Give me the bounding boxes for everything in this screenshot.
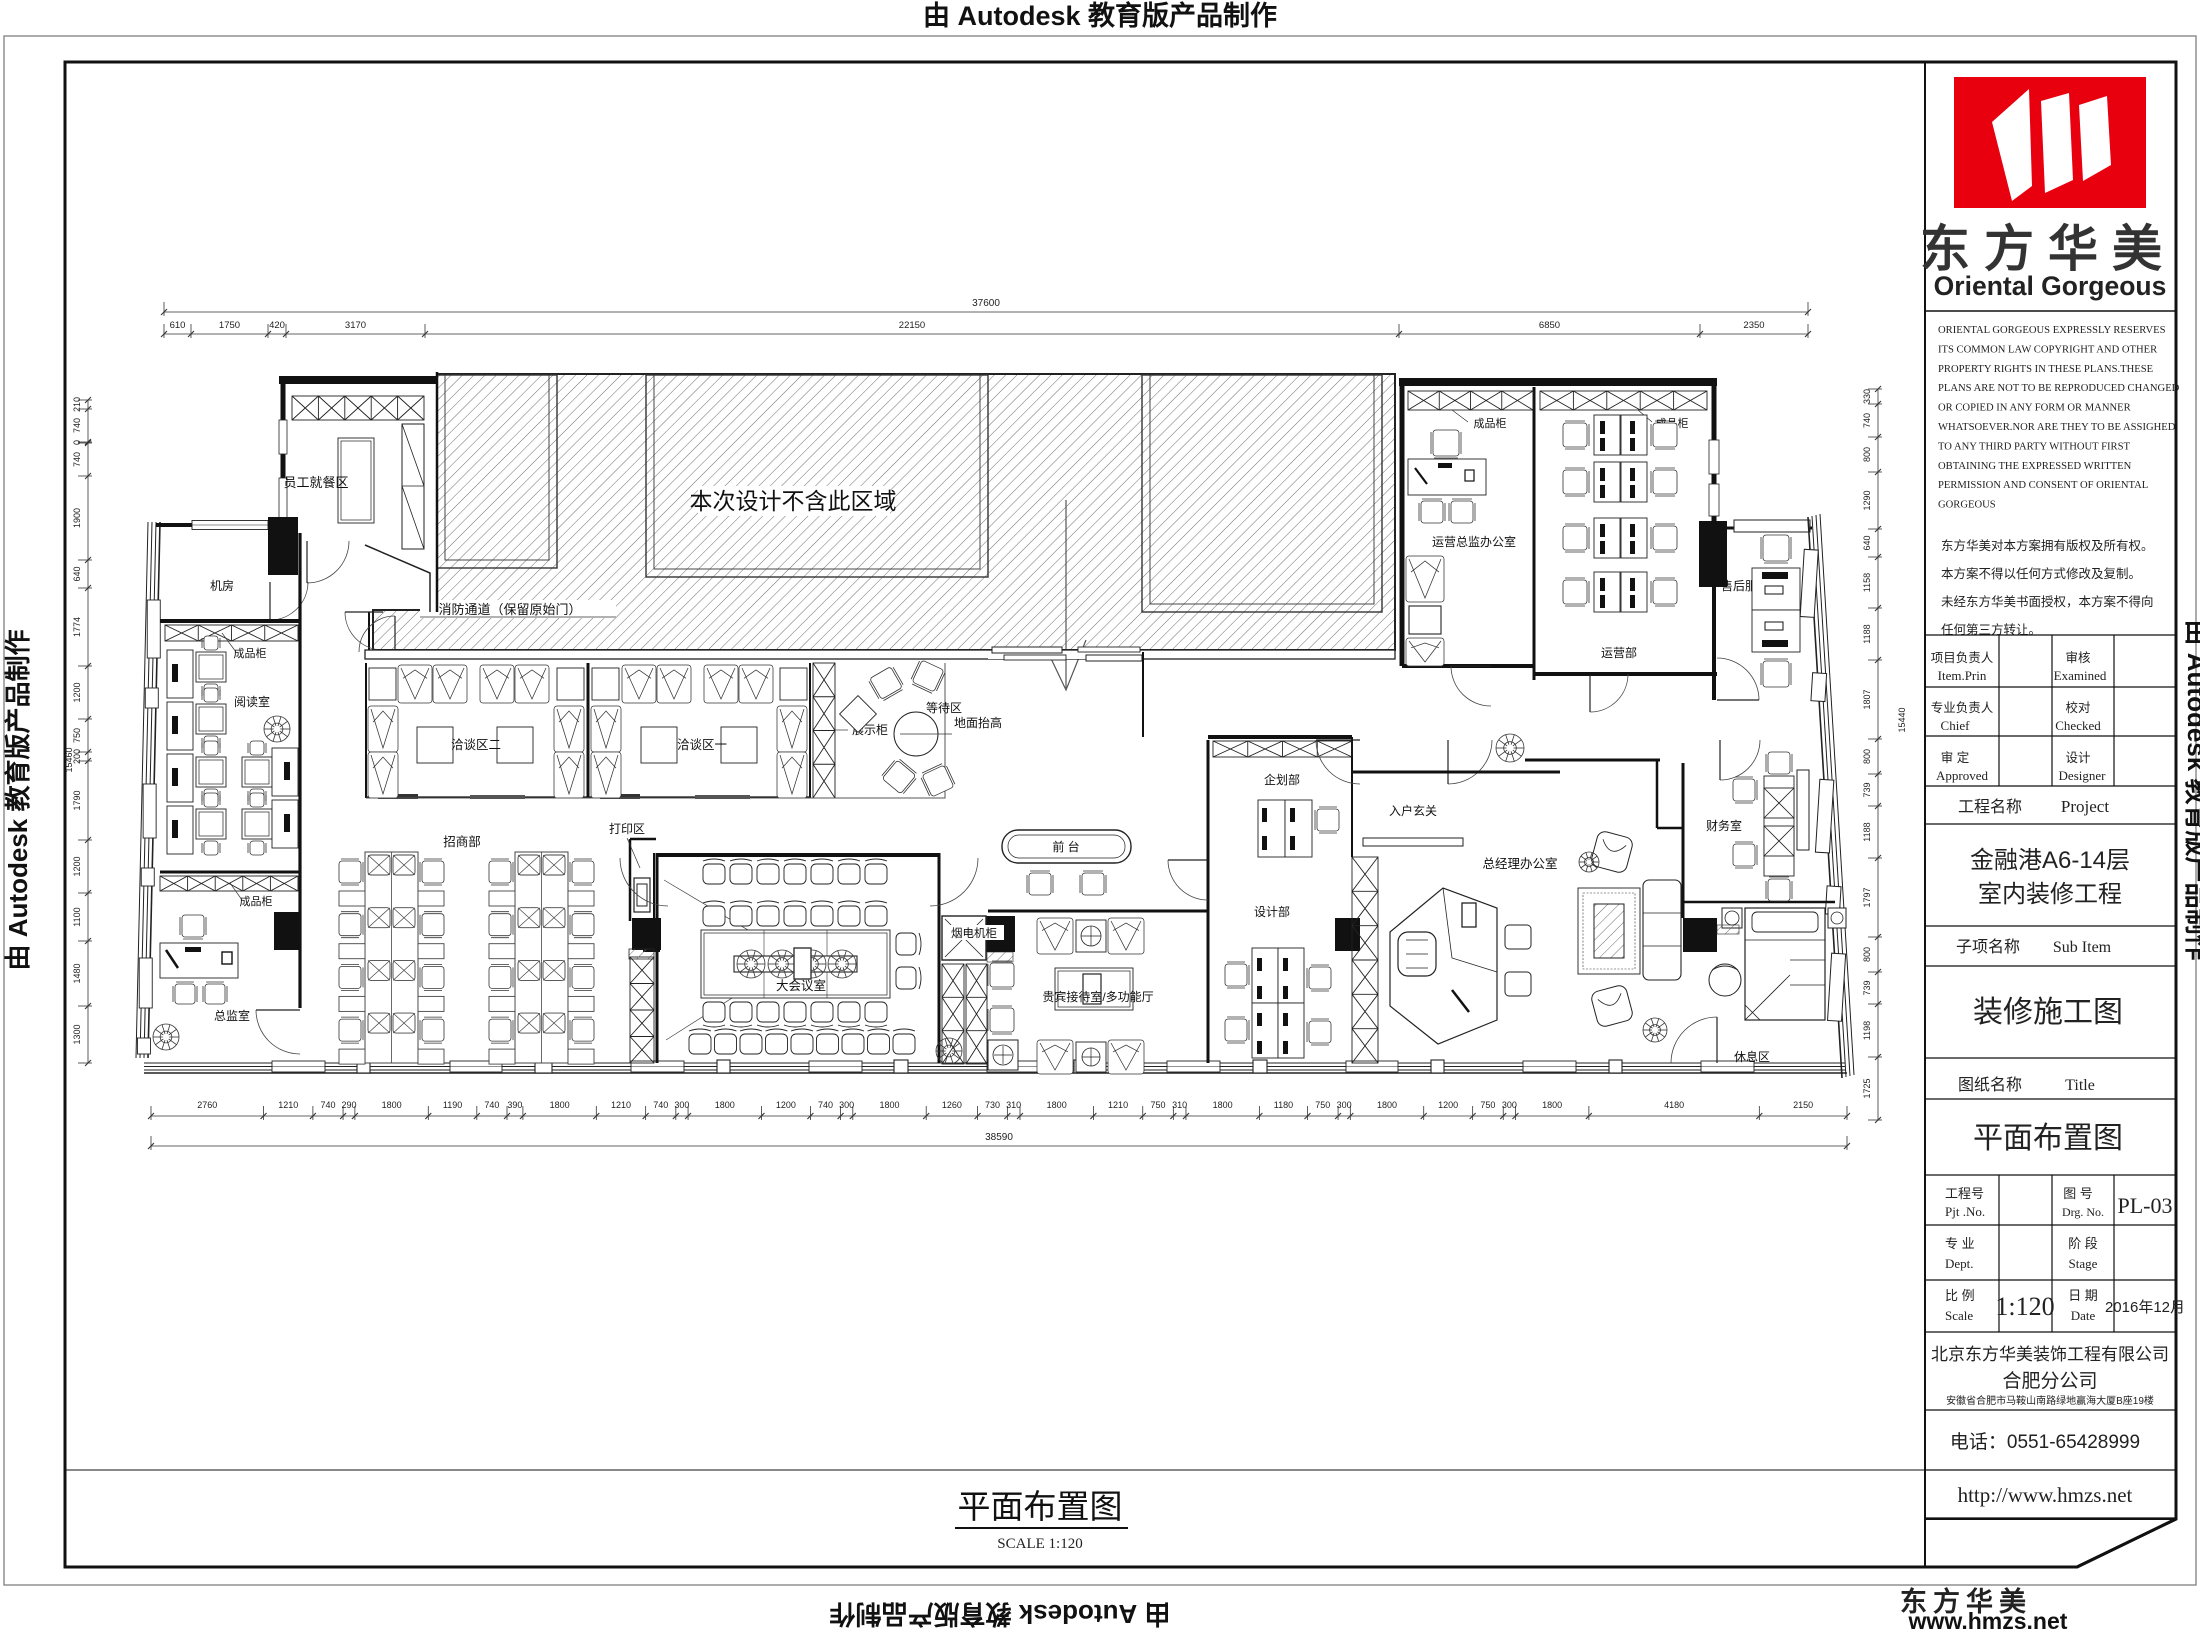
svg-text:企划部: 企划部 bbox=[1264, 772, 1300, 787]
svg-text:22150: 22150 bbox=[899, 320, 925, 331]
svg-text:2350: 2350 bbox=[1743, 320, 1764, 331]
svg-text:装修施工图: 装修施工图 bbox=[1973, 996, 2123, 1029]
svg-text:Project: Project bbox=[2061, 797, 2109, 816]
svg-text:员工就餐区: 员工就餐区 bbox=[283, 475, 348, 490]
svg-text:800: 800 bbox=[1862, 447, 1872, 462]
svg-text:1200: 1200 bbox=[1438, 1100, 1458, 1110]
svg-text:1750: 1750 bbox=[219, 320, 240, 331]
svg-text:由 Autodesk 教育版产品制作: 由 Autodesk 教育版产品制作 bbox=[3, 630, 33, 971]
svg-text:1200: 1200 bbox=[776, 1100, 796, 1110]
svg-text:东方华美: 东方华美 bbox=[1920, 221, 2176, 277]
svg-text:750: 750 bbox=[1151, 1100, 1166, 1110]
svg-text:电话：0551-65428999: 电话：0551-65428999 bbox=[1950, 1431, 2140, 1453]
svg-text:等待区: 等待区 bbox=[926, 701, 962, 715]
svg-text:运营部: 运营部 bbox=[1601, 645, 1637, 660]
svg-text:Oriental Gorgeous: Oriental Gorgeous bbox=[1934, 271, 2167, 301]
svg-text:机房: 机房 bbox=[210, 578, 234, 593]
svg-text:2150: 2150 bbox=[1793, 1100, 1813, 1110]
svg-text:740: 740 bbox=[484, 1100, 499, 1110]
svg-text:财务室: 财务室 bbox=[1706, 818, 1742, 833]
svg-text:Sub Item: Sub Item bbox=[2053, 939, 2112, 956]
svg-text:730: 730 bbox=[985, 1100, 1000, 1110]
svg-text:打印区: 打印区 bbox=[609, 822, 645, 836]
svg-text:www.hmzs.net: www.hmzs.net bbox=[1908, 1608, 2068, 1632]
svg-text:前 台: 前 台 bbox=[1052, 839, 1079, 854]
svg-text:750: 750 bbox=[1315, 1100, 1330, 1110]
svg-text:300: 300 bbox=[674, 1100, 689, 1110]
svg-text:300: 300 bbox=[1502, 1100, 1517, 1110]
svg-text:PERMISSION AND CONSENT OF ORIE: PERMISSION AND CONSENT OF ORIENTAL bbox=[1938, 480, 2148, 491]
svg-text:740: 740 bbox=[653, 1100, 668, 1110]
svg-text:739: 739 bbox=[1862, 980, 1872, 995]
svg-text:740: 740 bbox=[72, 418, 82, 433]
svg-text:0: 0 bbox=[72, 440, 82, 445]
svg-text:310: 310 bbox=[1172, 1100, 1187, 1110]
svg-text:室内装修工程: 室内装修工程 bbox=[1978, 881, 2122, 908]
svg-text:PL-03: PL-03 bbox=[2118, 1193, 2173, 1218]
svg-text:招商部: 招商部 bbox=[443, 834, 481, 849]
svg-text:1800: 1800 bbox=[1213, 1100, 1233, 1110]
svg-text:图 号: 图 号 bbox=[2063, 1186, 2093, 1201]
svg-text:校对: 校对 bbox=[2065, 700, 2090, 715]
svg-text:1200: 1200 bbox=[72, 856, 82, 876]
svg-text:1188: 1188 bbox=[1862, 624, 1872, 643]
svg-text:38590: 38590 bbox=[985, 1132, 1013, 1143]
svg-text:Drg. No.: Drg. No. bbox=[2062, 1205, 2104, 1219]
svg-text:PROPERTY RIGHTS IN THESE PLANS: PROPERTY RIGHTS IN THESE PLANS.THESE bbox=[1938, 364, 2153, 375]
svg-text:1210: 1210 bbox=[278, 1100, 298, 1110]
svg-text:GORGEOUS: GORGEOUS bbox=[1938, 500, 1996, 511]
svg-text:750: 750 bbox=[1480, 1100, 1495, 1110]
svg-text:1:120: 1:120 bbox=[1995, 1292, 2054, 1321]
svg-text:740: 740 bbox=[818, 1100, 833, 1110]
svg-text:子项名称: 子项名称 bbox=[1956, 938, 2020, 956]
svg-text:800: 800 bbox=[1862, 947, 1872, 962]
svg-text:成品柜: 成品柜 bbox=[234, 647, 267, 660]
svg-text:15440: 15440 bbox=[1897, 707, 1907, 732]
svg-text:1800: 1800 bbox=[1047, 1100, 1067, 1110]
svg-text:1800: 1800 bbox=[1377, 1100, 1397, 1110]
svg-text:Approved: Approved bbox=[1936, 768, 1988, 783]
svg-text:1200: 1200 bbox=[72, 682, 82, 702]
svg-text:阅读室: 阅读室 bbox=[234, 694, 270, 709]
svg-text:Title: Title bbox=[2065, 1077, 2095, 1094]
svg-text:专业负责人: 专业负责人 bbox=[1931, 700, 1994, 715]
svg-text:1190: 1190 bbox=[443, 1100, 462, 1110]
svg-text:平面布置图: 平面布置图 bbox=[958, 1488, 1123, 1525]
svg-text:6850: 6850 bbox=[1539, 320, 1560, 331]
svg-text:300: 300 bbox=[1337, 1100, 1352, 1110]
svg-text:WHATSOEVER.NOR ARE THEY TO BE: WHATSOEVER.NOR ARE THEY TO BE ASSIGHED bbox=[1938, 422, 2176, 433]
svg-text:1300: 1300 bbox=[72, 1024, 82, 1044]
svg-text:总监室: 总监室 bbox=[214, 1008, 250, 1023]
svg-text:1800: 1800 bbox=[715, 1100, 735, 1110]
svg-text:Scale: Scale bbox=[1945, 1308, 1973, 1323]
svg-text:1260: 1260 bbox=[942, 1100, 962, 1110]
svg-text:310: 310 bbox=[1006, 1100, 1021, 1110]
svg-text:ITS COMMON LAW COPYRIGHT AND O: ITS COMMON LAW COPYRIGHT AND OTHER bbox=[1938, 344, 2158, 355]
svg-text:Date: Date bbox=[2071, 1308, 2096, 1323]
svg-text:入户玄关: 入户玄关 bbox=[1389, 803, 1437, 818]
svg-text:Item.Prin: Item.Prin bbox=[1938, 668, 1987, 683]
svg-text:烟电机柜: 烟电机柜 bbox=[951, 926, 997, 940]
svg-text:1800: 1800 bbox=[550, 1100, 570, 1110]
svg-text:1198: 1198 bbox=[1862, 1021, 1872, 1040]
svg-text:比 例: 比 例 bbox=[1945, 1288, 1975, 1303]
svg-text:本次设计不含此区域: 本次设计不含此区域 bbox=[690, 488, 897, 514]
svg-text:专 业: 专 业 bbox=[1945, 1236, 1975, 1251]
svg-text:北京东方华美装饰工程有限公司: 北京东方华美装饰工程有限公司 bbox=[1931, 1345, 2169, 1364]
svg-text:Checked: Checked bbox=[2055, 718, 2101, 733]
svg-text:本方案不得以任何方式修改及复制。: 本方案不得以任何方式修改及复制。 bbox=[1941, 566, 2141, 581]
svg-text:安徽省合肥市马鞍山南路绿地赢海大厦B座19楼: 安徽省合肥市马鞍山南路绿地赢海大厦B座19楼 bbox=[1946, 1394, 2154, 1407]
svg-text:1210: 1210 bbox=[1108, 1100, 1128, 1110]
svg-text:330: 330 bbox=[1862, 389, 1872, 404]
svg-text:合肥分公司: 合肥分公司 bbox=[2002, 1370, 2097, 1392]
svg-text:610: 610 bbox=[170, 320, 186, 331]
svg-text:2760: 2760 bbox=[197, 1100, 217, 1110]
svg-text:1180: 1180 bbox=[1274, 1100, 1293, 1110]
svg-text:ORIENTAL GORGEOUS EXPRESSLY RE: ORIENTAL GORGEOUS EXPRESSLY RESERVES bbox=[1938, 325, 2166, 336]
svg-text:1725: 1725 bbox=[1862, 1078, 1872, 1098]
svg-text:37600: 37600 bbox=[972, 298, 1000, 309]
svg-text:TO ANY THIRD PARTY WITHOUT FIR: TO ANY THIRD PARTY WITHOUT FIRST bbox=[1938, 441, 2130, 452]
svg-text:3170: 3170 bbox=[345, 320, 366, 331]
svg-text:210: 210 bbox=[72, 397, 82, 412]
svg-text:洽谈区一: 洽谈区一 bbox=[677, 738, 727, 752]
svg-text:1210: 1210 bbox=[611, 1100, 631, 1110]
svg-text:由 Autodesk 教育版产品制作: 由 Autodesk 教育版产品制作 bbox=[923, 0, 1277, 31]
svg-text:1797: 1797 bbox=[1862, 887, 1872, 907]
svg-text:1800: 1800 bbox=[1542, 1100, 1562, 1110]
svg-text:OBTAINING THE EXPRESSED WRITTE: OBTAINING THE EXPRESSED WRITTEN bbox=[1938, 461, 2132, 472]
svg-text:1800: 1800 bbox=[382, 1100, 402, 1110]
svg-text:1188: 1188 bbox=[1862, 822, 1872, 841]
svg-text:290: 290 bbox=[341, 1100, 356, 1110]
svg-text:休息区: 休息区 bbox=[1734, 1049, 1770, 1064]
svg-text:750: 750 bbox=[72, 728, 82, 743]
svg-text:运营总监办公室: 运营总监办公室 bbox=[1432, 534, 1516, 549]
svg-text:Pjt .No.: Pjt .No. bbox=[1945, 1204, 1985, 1219]
svg-text:http://www.hmzs.net: http://www.hmzs.net bbox=[1958, 1483, 2133, 1507]
svg-text:由 Autodesk 教育版产品制作: 由 Autodesk 教育版产品制作 bbox=[2182, 620, 2200, 961]
svg-text:OR COPIED IN ANY FORM OR MANNE: OR COPIED IN ANY FORM OR MANNER bbox=[1938, 403, 2132, 414]
svg-text:设计: 设计 bbox=[2065, 750, 2090, 765]
svg-text:日 期: 日 期 bbox=[2068, 1288, 2098, 1303]
svg-text:Stage: Stage bbox=[2069, 1256, 2098, 1271]
svg-text:成品柜: 成品柜 bbox=[240, 895, 273, 908]
svg-text:Chief: Chief bbox=[1941, 718, 1971, 733]
svg-text:消防通道（保留原始门）: 消防通道（保留原始门） bbox=[438, 602, 581, 617]
svg-text:640: 640 bbox=[1862, 535, 1872, 550]
svg-text:739: 739 bbox=[1862, 782, 1872, 797]
svg-text:设计部: 设计部 bbox=[1254, 904, 1290, 919]
svg-text:1807: 1807 bbox=[1862, 689, 1872, 709]
svg-text:工程名称: 工程名称 bbox=[1958, 798, 2022, 816]
svg-text:1158: 1158 bbox=[1862, 573, 1872, 592]
svg-text:金融港A6-14层: 金融港A6-14层 bbox=[1970, 847, 2130, 874]
svg-text:平面布置图: 平面布置图 bbox=[1973, 1122, 2123, 1155]
svg-text:1800: 1800 bbox=[879, 1100, 899, 1110]
svg-text:由 Autodesk 教育版产品制作: 由 Autodesk 教育版产品制作 bbox=[830, 1599, 1171, 1629]
svg-text:740: 740 bbox=[1862, 413, 1872, 428]
svg-text:2016年12月: 2016年12月 bbox=[2105, 1299, 2185, 1316]
svg-text:640: 640 bbox=[72, 566, 82, 581]
svg-text:洽谈区二: 洽谈区二 bbox=[451, 738, 501, 752]
svg-text:审核: 审核 bbox=[2065, 650, 2091, 665]
svg-text:800: 800 bbox=[1862, 749, 1872, 764]
svg-text:Designer: Designer bbox=[2059, 768, 2107, 783]
svg-text:740: 740 bbox=[72, 452, 82, 467]
svg-text:420: 420 bbox=[269, 320, 285, 331]
svg-text:300: 300 bbox=[839, 1100, 854, 1110]
svg-text:1290: 1290 bbox=[1862, 490, 1872, 510]
svg-text:成品柜: 成品柜 bbox=[1474, 417, 1507, 430]
svg-text:1100: 1100 bbox=[72, 907, 82, 926]
svg-text:项目负责人: 项目负责人 bbox=[1931, 651, 1994, 665]
svg-text:SCALE 1:120: SCALE 1:120 bbox=[997, 1536, 1082, 1552]
svg-text:15460: 15460 bbox=[64, 747, 74, 772]
svg-text:工程号: 工程号 bbox=[1945, 1186, 1984, 1201]
svg-text:大会议室: 大会议室 bbox=[776, 978, 826, 993]
svg-text:1774: 1774 bbox=[72, 617, 82, 637]
svg-text:未经东方华美书面授权，本方案不得向: 未经东方华美书面授权，本方案不得向 bbox=[1941, 594, 2154, 609]
svg-text:审 定: 审 定 bbox=[1941, 750, 1969, 765]
svg-text:4180: 4180 bbox=[1664, 1100, 1684, 1110]
svg-text:1900: 1900 bbox=[72, 508, 82, 528]
svg-text:740: 740 bbox=[320, 1100, 335, 1110]
svg-text:PLANS ARE NOT TO BE REPRODUCED: PLANS ARE NOT TO BE REPRODUCED CHANGED bbox=[1938, 383, 2180, 394]
svg-text:390: 390 bbox=[507, 1100, 522, 1110]
svg-text:地面抬高: 地面抬高 bbox=[954, 715, 1002, 730]
svg-text:1480: 1480 bbox=[72, 963, 82, 983]
svg-text:Dept.: Dept. bbox=[1945, 1256, 1974, 1271]
svg-text:Examined: Examined bbox=[2054, 668, 2107, 683]
svg-text:1790: 1790 bbox=[72, 790, 82, 810]
svg-text:东方华美对本方案拥有版权及所有权。: 东方华美对本方案拥有版权及所有权。 bbox=[1941, 538, 2154, 553]
svg-text:阶 段: 阶 段 bbox=[2068, 1236, 2098, 1251]
svg-text:图纸名称: 图纸名称 bbox=[1958, 1076, 2022, 1094]
svg-text:贵宾接待室/多功能厅: 贵宾接待室/多功能厅 bbox=[1042, 989, 1153, 1004]
svg-text:总经理办公室: 总经理办公室 bbox=[1482, 856, 1557, 871]
